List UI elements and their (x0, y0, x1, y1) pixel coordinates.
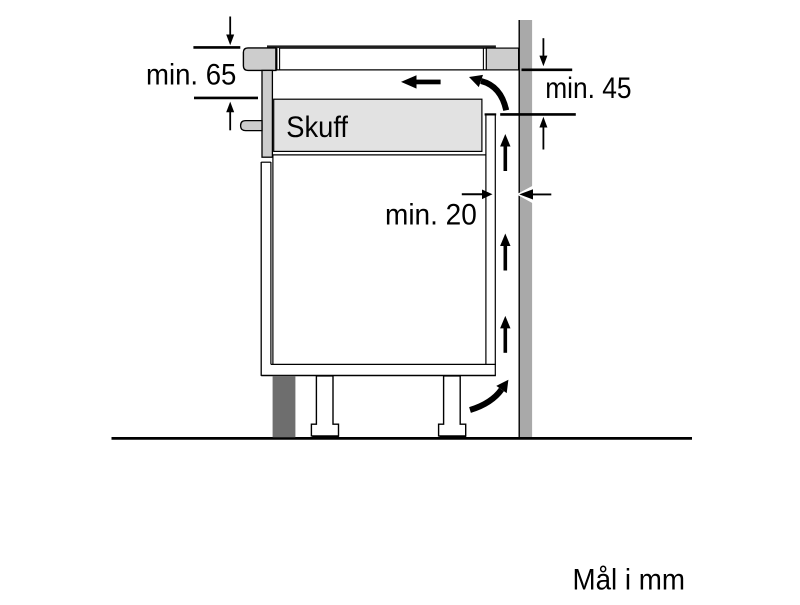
svg-text:Skuff: Skuff (286, 111, 348, 144)
svg-text:min. 45: min. 45 (545, 72, 631, 105)
svg-text:min. 65: min. 65 (146, 59, 236, 92)
svg-text:min. 20: min. 20 (385, 199, 477, 232)
svg-text:Mål i mm: Mål i mm (573, 563, 686, 596)
